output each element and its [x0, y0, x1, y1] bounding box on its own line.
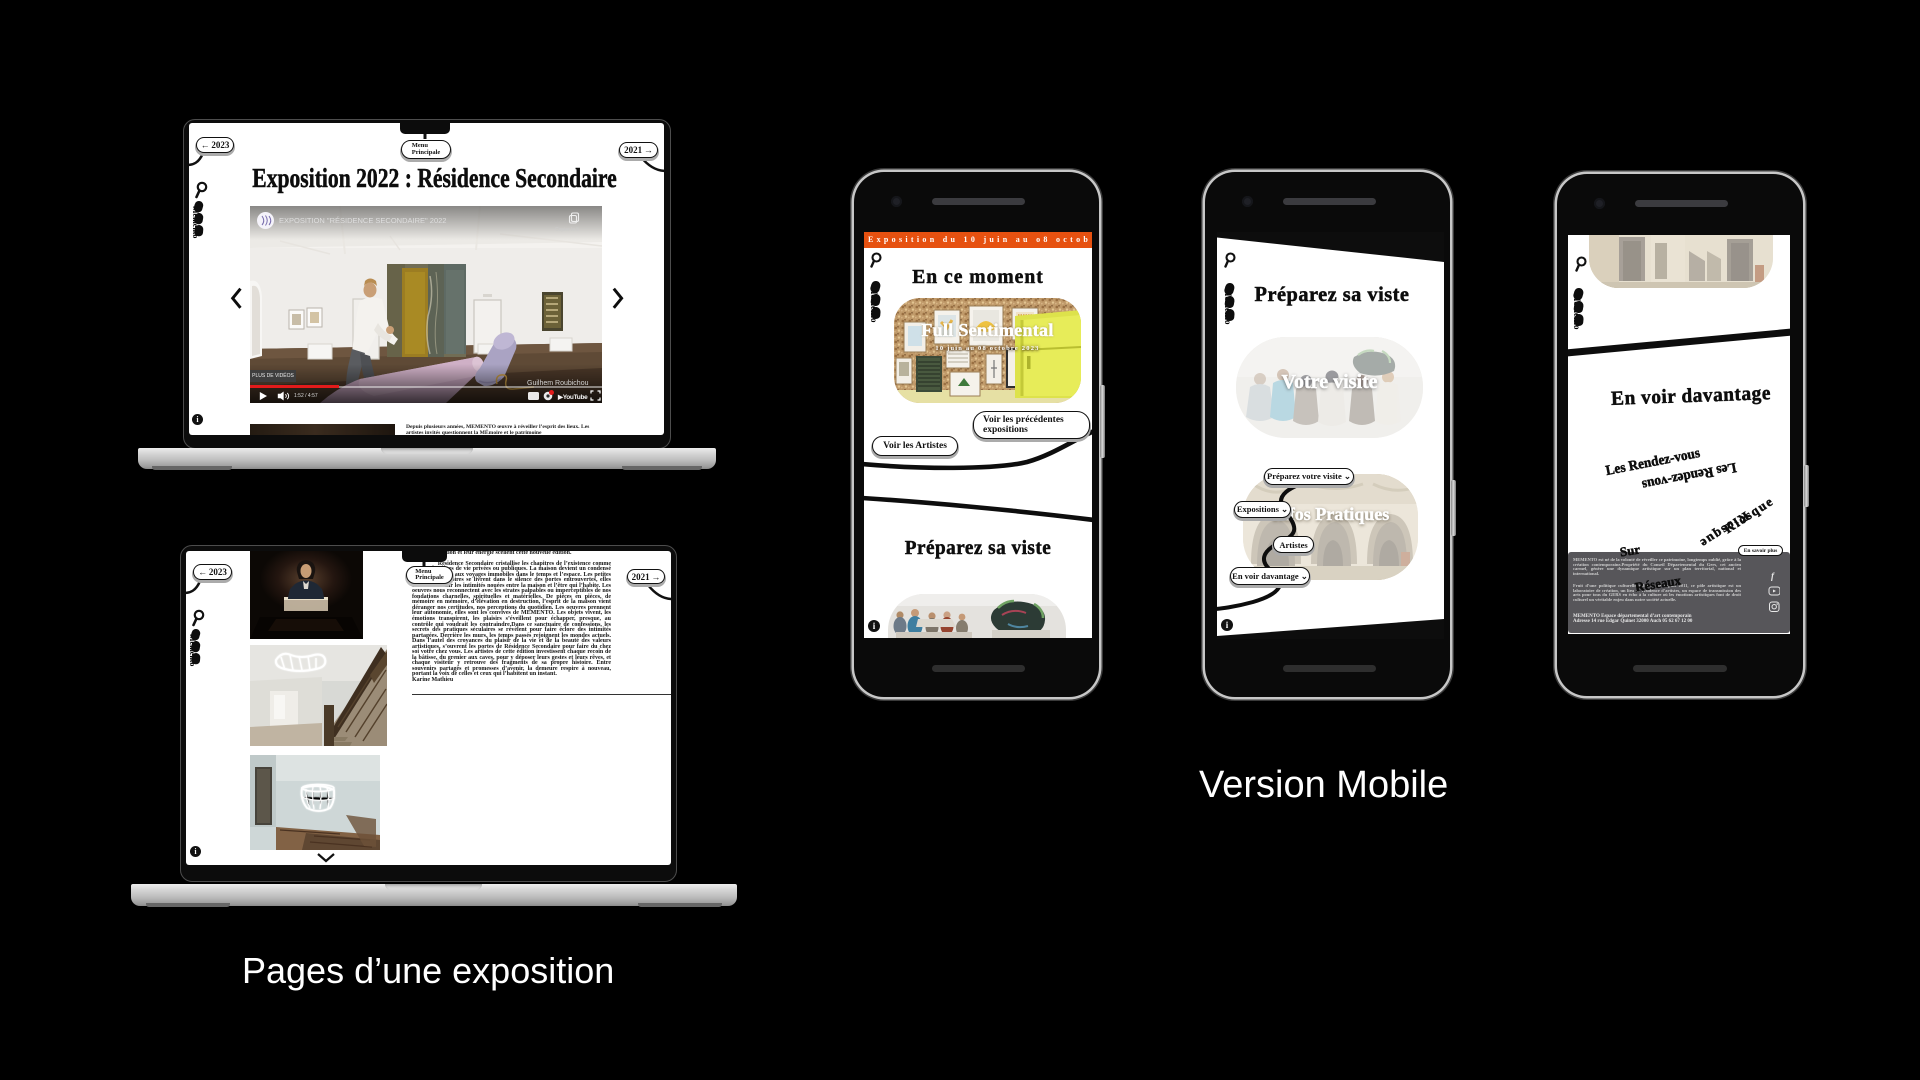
- svg-text:f: f: [1771, 571, 1775, 581]
